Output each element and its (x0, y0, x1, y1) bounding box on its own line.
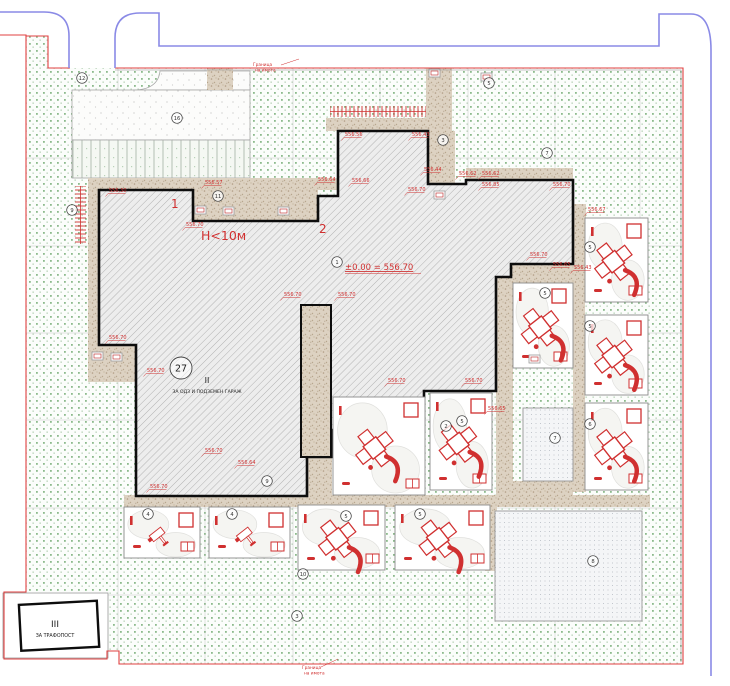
sport-field-7 (523, 408, 573, 481)
post-symbol (401, 514, 404, 523)
table-symbol (406, 479, 419, 488)
svg-text:7: 7 (553, 436, 556, 442)
circled-number: 7 (550, 433, 561, 444)
svg-text:556.67: 556.67 (588, 207, 606, 213)
svg-text:9: 9 (70, 208, 73, 214)
svg-text:556.70: 556.70 (109, 335, 127, 341)
circled-number: 5 (540, 288, 551, 299)
svg-text:6: 6 (588, 422, 591, 428)
bench-symbol (529, 355, 540, 363)
svg-text:556.43: 556.43 (574, 265, 592, 271)
svg-text:556.64: 556.64 (238, 460, 256, 466)
svg-text:5: 5 (543, 291, 546, 297)
playground-cell (585, 218, 652, 304)
circled-number: 3 (438, 135, 449, 146)
sandbox-symbol (469, 511, 483, 525)
svg-text:9: 9 (265, 479, 268, 485)
sport-field-8 (495, 511, 642, 621)
post-symbol (304, 514, 307, 523)
zone-1-label: 1 (171, 197, 179, 211)
svg-text:5: 5 (588, 324, 591, 330)
svg-text:5: 5 (588, 245, 591, 251)
bench-symbol (223, 207, 234, 215)
fence-symbol-top (330, 106, 426, 117)
svg-text:10: 10 (300, 572, 307, 578)
bench-dash-symbol (133, 545, 141, 548)
playground-cell (209, 507, 290, 558)
svg-text:556.66: 556.66 (352, 178, 370, 184)
sandbox-symbol (179, 513, 193, 527)
svg-text:556.70: 556.70 (408, 187, 426, 193)
building-2-label: ЗА ОДЗ И ПОДЗЕМЕН ГАРАЖ (172, 389, 241, 395)
bench-dash-symbol (342, 482, 350, 485)
sandbox-symbol (269, 513, 283, 527)
post-symbol (339, 406, 342, 415)
svg-text:7: 7 (545, 151, 548, 157)
circled-number: 5 (585, 242, 596, 253)
circled-number: 5 (415, 509, 426, 520)
sandbox-symbol (404, 403, 418, 417)
circled-number: 3 (292, 611, 303, 622)
table-symbol (271, 542, 284, 551)
playground-cell (124, 507, 200, 558)
svg-text:5: 5 (418, 512, 421, 518)
svg-text:16: 16 (174, 116, 181, 122)
bench-dash-symbol (594, 289, 602, 292)
site-plan-canvas: 556.30556.70556.57556.70556.56556.43556.… (0, 0, 730, 686)
svg-text:2: 2 (444, 424, 447, 430)
post-symbol (519, 292, 522, 301)
svg-text:Граница: Граница (302, 665, 322, 671)
parking-stalls (72, 140, 250, 178)
svg-text:556.64: 556.64 (318, 177, 336, 183)
svg-text:556.65: 556.65 (488, 406, 506, 412)
circled-number: 2 (441, 421, 452, 432)
svg-text:556.70: 556.70 (530, 252, 548, 258)
playground-cell (395, 505, 490, 581)
svg-text:556.65: 556.65 (553, 262, 571, 268)
circled-number: 8 (588, 556, 599, 567)
circled-number: 9 (262, 476, 273, 487)
circled-number: 11 (213, 191, 224, 202)
svg-text:3: 3 (295, 614, 298, 620)
post-symbol (215, 516, 218, 525)
sandbox-symbol (552, 289, 566, 303)
svg-text:556.70: 556.70 (338, 292, 356, 298)
svg-text:5: 5 (344, 514, 347, 520)
bench-dash-symbol (404, 557, 412, 560)
site-plan-drawing: 556.30556.70556.57556.70556.56556.43556.… (0, 0, 730, 686)
circled-number: 5 (585, 321, 596, 332)
sandbox-symbol (627, 224, 641, 238)
svg-text:556.43: 556.43 (412, 132, 430, 138)
fence-symbol-left (75, 186, 86, 244)
building-2-number: II (205, 376, 210, 385)
bench-dash-symbol (439, 477, 447, 480)
svg-text:556.44: 556.44 (424, 167, 442, 173)
bench-dash-symbol (218, 545, 226, 548)
sandbox-symbol (627, 321, 641, 335)
svg-text:556.70: 556.70 (553, 182, 571, 188)
svg-text:556.57: 556.57 (205, 180, 223, 186)
svg-text:Граница: Граница (253, 62, 273, 68)
svg-text:5: 5 (460, 419, 463, 425)
svg-text:12: 12 (79, 76, 86, 82)
big-circle-27-num: 27 (175, 364, 187, 375)
building-3-number: III (51, 620, 59, 630)
sandbox-symbol (364, 511, 378, 525)
bench-dash-symbol (594, 477, 602, 480)
bench-dash-symbol (307, 557, 315, 560)
svg-text:556.85: 556.85 (482, 182, 500, 188)
svg-text:на имота: на имота (255, 69, 276, 74)
circled-number: 12 (77, 73, 88, 84)
circled-number: 4 (143, 509, 154, 520)
svg-text:8: 8 (591, 559, 594, 565)
level-mark: ±0.00 = 556.70 (345, 263, 413, 273)
building-3-label: ЗА ТРАФОПОСТ (36, 633, 75, 639)
svg-text:556.70: 556.70 (284, 292, 302, 298)
playground-cell (333, 397, 425, 495)
playground-cell (585, 403, 652, 491)
circled-number: 6 (585, 419, 596, 430)
table-symbol (181, 542, 194, 551)
circled-number: 16 (172, 113, 183, 124)
bench-symbol (278, 207, 289, 215)
bench-symbol (111, 353, 122, 361)
svg-text:556.70: 556.70 (147, 368, 165, 374)
svg-text:556.30: 556.30 (109, 188, 127, 194)
svg-text:556.56: 556.56 (345, 132, 363, 138)
svg-text:556.70: 556.70 (150, 484, 168, 490)
svg-text:556.62: 556.62 (459, 171, 477, 177)
circled-number: 5 (484, 78, 495, 89)
svg-text:556.70: 556.70 (388, 378, 406, 384)
zone-2-label: 2 (319, 222, 327, 236)
circled-number: 5 (341, 511, 352, 522)
post-symbol (436, 402, 439, 411)
height-note: Н<10м (201, 228, 246, 243)
svg-text:3: 3 (441, 138, 444, 144)
svg-text:556.70: 556.70 (465, 378, 483, 384)
svg-text:556.70: 556.70 (205, 448, 223, 454)
circled-number: 7 (542, 148, 553, 159)
sandbox-symbol (627, 409, 641, 423)
table-symbol (366, 554, 379, 563)
table-symbol (471, 554, 484, 563)
svg-text:на имота: на имота (304, 672, 325, 677)
bench-symbol (434, 191, 445, 199)
courtyard-passage (301, 305, 331, 457)
building-3-footprint (19, 601, 99, 651)
bench-symbol (195, 206, 206, 214)
circled-number: 5 (457, 416, 468, 427)
svg-text:1: 1 (335, 260, 338, 266)
svg-text:5: 5 (487, 81, 490, 87)
post-symbol (591, 227, 594, 236)
bench-dash-symbol (594, 382, 602, 385)
circled-number: 9 (67, 205, 78, 216)
sandbox-symbol (471, 399, 485, 413)
svg-text:556.62: 556.62 (482, 171, 500, 177)
playground-cell (430, 393, 497, 490)
transformer-station: III ЗА ТРАФОПОСТ (3, 593, 108, 658)
circled-number: 1 (332, 257, 343, 268)
post-symbol (130, 516, 133, 525)
circled-number: 10 (298, 569, 309, 580)
circled-number: 4 (227, 509, 238, 520)
bench-symbol (92, 352, 103, 360)
svg-text:11: 11 (215, 194, 222, 200)
